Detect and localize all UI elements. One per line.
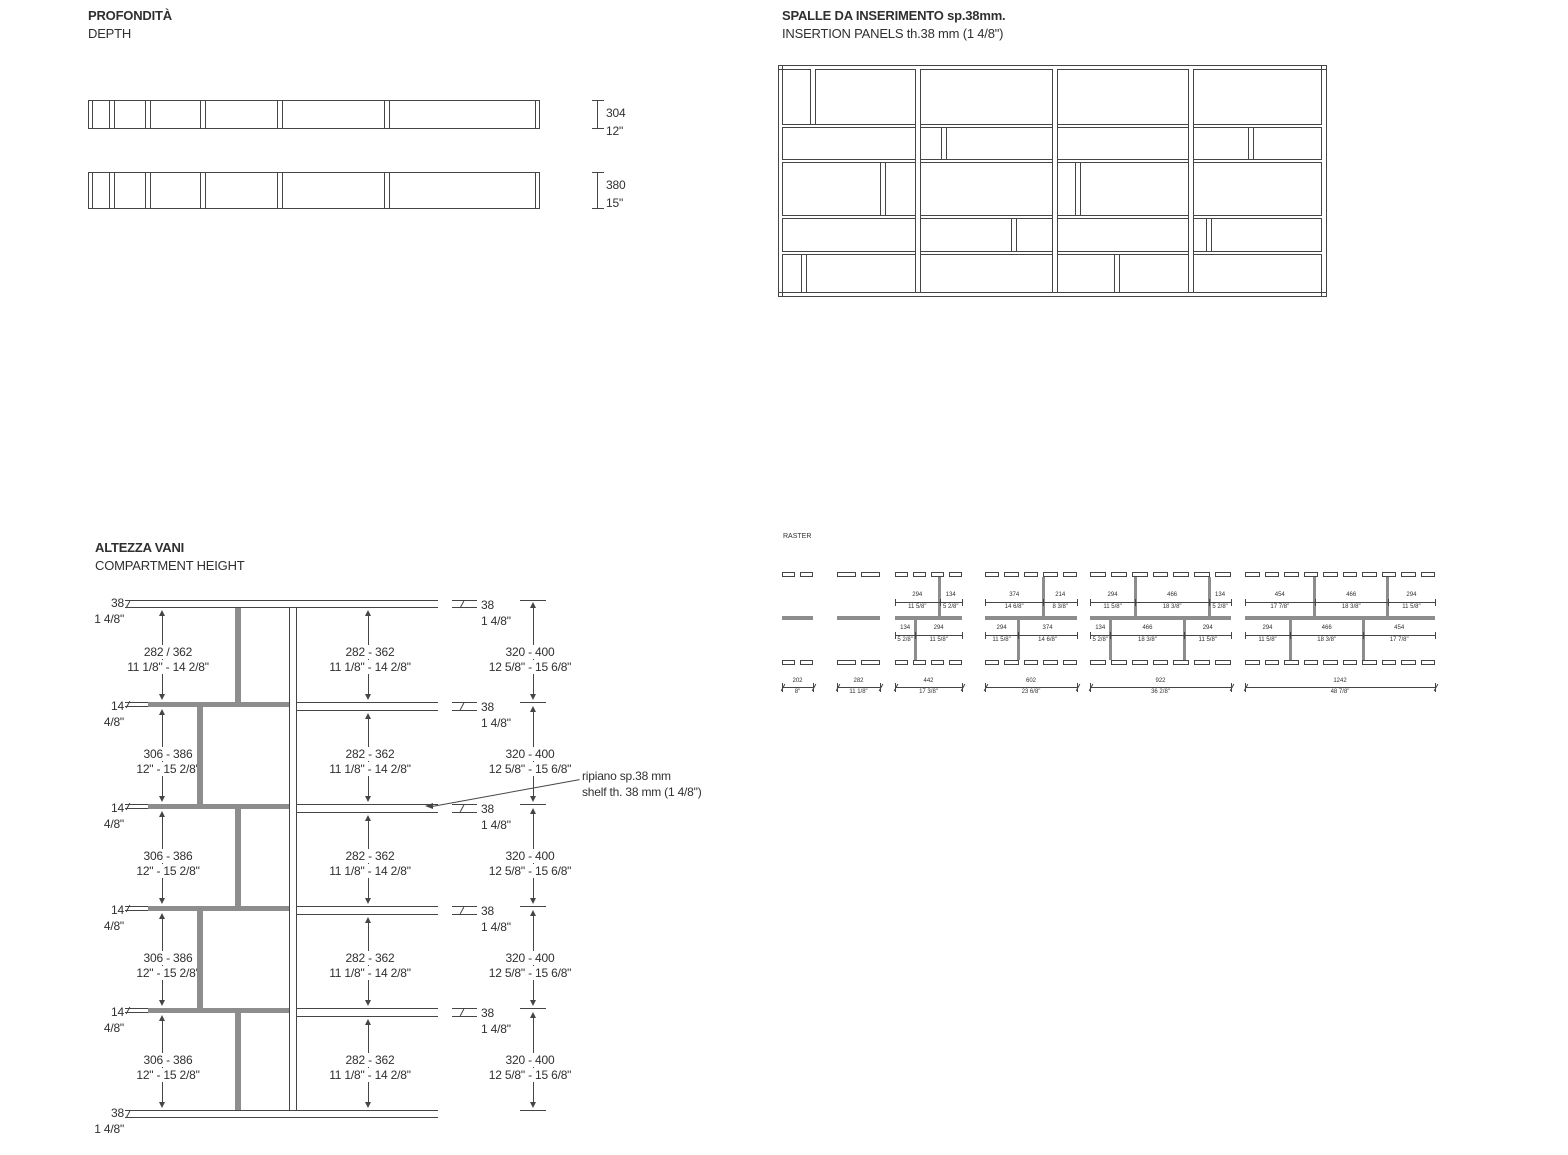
raster-shelf bbox=[985, 616, 1077, 620]
right-ext-line bbox=[452, 812, 477, 813]
middle-dim-arrow-down bbox=[365, 1102, 371, 1108]
raster-dash bbox=[1245, 572, 1260, 577]
left-dim-arrow-up bbox=[159, 610, 165, 616]
raster-dash bbox=[1401, 660, 1416, 665]
middle-dim-arrow-down bbox=[365, 898, 371, 904]
raster-dash bbox=[1153, 660, 1169, 665]
raster-segment-mm: 466 bbox=[1305, 625, 1349, 632]
depth-bar-divider bbox=[384, 101, 390, 128]
thin-shelf-14mm bbox=[148, 702, 289, 707]
grid-inner-bottom-line bbox=[779, 292, 1326, 293]
right-compartment-inch: 12 5/8" - 15 6/8" bbox=[470, 660, 590, 674]
raster-segment-inch: 14 6/8" bbox=[992, 604, 1036, 611]
middle-dim-arrow-up bbox=[365, 713, 371, 719]
depth-bar-divider bbox=[109, 101, 115, 128]
raster-shelf bbox=[895, 616, 962, 620]
middle-dim-arrow-up bbox=[365, 917, 371, 923]
left-dim-arrow-down bbox=[159, 1000, 165, 1006]
left-compartment-inch: 12" - 15 2/8" bbox=[108, 762, 228, 776]
raster-dash bbox=[1111, 572, 1127, 577]
left-dim-arrow-down bbox=[159, 796, 165, 802]
top-shelf bbox=[148, 600, 438, 608]
middle-dim-arrow-up bbox=[365, 815, 371, 821]
left-ext-line bbox=[125, 910, 148, 911]
raster-width-dim-line bbox=[895, 687, 962, 688]
raster-width-mm: 202 bbox=[773, 678, 823, 685]
raster-dash bbox=[1132, 660, 1148, 665]
raster-dash bbox=[1004, 572, 1018, 577]
left-compartment-mm: 306 - 386 bbox=[108, 1053, 228, 1067]
raster-segment-inch: 8 3/8" bbox=[1038, 604, 1082, 611]
raster-dash bbox=[1173, 572, 1189, 577]
right-dim-arrow-up bbox=[530, 602, 536, 608]
raster-width-dim-line bbox=[837, 687, 880, 688]
raster-dash bbox=[837, 660, 856, 665]
raster-dash bbox=[861, 572, 880, 577]
dimension-bracket-tick bbox=[592, 100, 604, 101]
raster-seg-dim-line bbox=[985, 635, 1077, 636]
right-dim-arrow-down bbox=[530, 694, 536, 700]
raster-segment-inch: 5 2/8" bbox=[1078, 637, 1122, 644]
right-compartment-mm: 320 - 400 bbox=[470, 849, 590, 863]
left-dim-arrow-up bbox=[159, 811, 165, 817]
left-dim-arrow-down bbox=[159, 694, 165, 700]
insertion-panel bbox=[880, 163, 886, 215]
depth-bar-divider bbox=[200, 101, 206, 128]
middle-dim-arrow-down bbox=[365, 796, 371, 802]
raster-dash bbox=[1284, 572, 1299, 577]
raster-segment-mm: 134 bbox=[1078, 625, 1122, 632]
middle-dim-arrow-down bbox=[365, 694, 371, 700]
depth-bar-divider bbox=[145, 101, 151, 128]
insertion-panel bbox=[1114, 255, 1120, 292]
raster-seg-tick bbox=[985, 599, 986, 606]
raster-seg-tick bbox=[1363, 632, 1364, 639]
dimension-bracket-line bbox=[597, 100, 598, 129]
raster-segment-mm: 454 bbox=[1377, 625, 1421, 632]
raster-width-dim-line bbox=[782, 687, 813, 688]
right-dim-arrow-down bbox=[530, 898, 536, 904]
grid-bay-panel bbox=[1052, 69, 1058, 292]
raster-shelf bbox=[837, 616, 880, 620]
raster-segment-inch: 11 5/8" bbox=[1091, 604, 1135, 611]
grid-inner-right-line bbox=[1321, 66, 1322, 296]
raster-segment-inch: 5 2/8" bbox=[1198, 604, 1242, 611]
raster-seg-tick bbox=[1135, 599, 1136, 606]
raster-dash bbox=[1004, 660, 1018, 665]
raster-dash bbox=[1215, 660, 1231, 665]
raster-segment-mm: 294 bbox=[917, 625, 961, 632]
middle-dim-arrow-up bbox=[365, 1019, 371, 1025]
raster-segment-mm: 374 bbox=[1026, 625, 1070, 632]
raster-seg-dim-line bbox=[1245, 635, 1435, 636]
middle-compartment-inch: 11 1/8" - 14 2/8" bbox=[310, 660, 430, 674]
raster-segment-mm: 294 bbox=[1246, 625, 1290, 632]
insertion-panel bbox=[941, 128, 947, 159]
right-shelf-thickness-mm: 38 bbox=[481, 598, 494, 612]
vertical-post bbox=[235, 608, 241, 702]
grid-inner-left-line bbox=[782, 66, 783, 296]
raster-dash bbox=[1323, 572, 1338, 577]
right-shelf-thickness-inch: 1 4/8" bbox=[481, 1022, 511, 1036]
dimension-bracket-line bbox=[597, 172, 598, 209]
right-compartment-inch: 12 5/8" - 15 6/8" bbox=[470, 1068, 590, 1082]
raster-width-dim-line bbox=[1245, 687, 1435, 688]
raster-dash bbox=[985, 572, 999, 577]
left-ext-line bbox=[125, 1012, 148, 1013]
raster-width-mm: 442 bbox=[904, 678, 954, 685]
depth-bar-edge-line bbox=[535, 173, 536, 208]
insertion-panel bbox=[1075, 163, 1081, 215]
vertical-post bbox=[235, 1013, 241, 1110]
depth-bar-edge-line bbox=[92, 101, 93, 128]
right-dim-arrow-down bbox=[530, 796, 536, 802]
raster-segment-inch: 18 3/8" bbox=[1329, 604, 1373, 611]
right-dim-ext-line bbox=[520, 1110, 546, 1111]
insertion-panel bbox=[801, 255, 807, 292]
raster-dash bbox=[949, 572, 962, 577]
raster-dash bbox=[1323, 660, 1338, 665]
right-dim-arrow-up bbox=[530, 706, 536, 712]
raster-segment-mm: 466 bbox=[1150, 592, 1194, 599]
left-compartment-mm: 306 - 386 bbox=[108, 747, 228, 761]
raster-seg-dim-line bbox=[895, 602, 962, 603]
vertical-post bbox=[235, 809, 241, 906]
raster-dash bbox=[800, 660, 813, 665]
thin-shelf-14mm bbox=[148, 804, 289, 809]
raster-seg-dim-line bbox=[1245, 602, 1435, 603]
spec-sheet-page: PROFONDITÀ DEPTH SPALLE DA INSERIMENTO s… bbox=[0, 0, 1568, 1155]
depth-bar-outline bbox=[88, 100, 540, 129]
insertion-panel bbox=[1011, 219, 1017, 251]
raster-segment-mm: 214 bbox=[1038, 592, 1082, 599]
left-compartment-mm: 306 - 386 bbox=[108, 951, 228, 965]
right-compartment-mm: 320 - 400 bbox=[470, 645, 590, 659]
raster-width-inch: 11 1/8" bbox=[834, 689, 884, 696]
right-dim-arrow-up bbox=[530, 910, 536, 916]
raster-segment-mm: 134 bbox=[929, 592, 973, 599]
top-thickness-mm: 38 bbox=[74, 596, 124, 610]
depth-bar-divider bbox=[277, 101, 283, 128]
right-shelf-thickness-mm: 38 bbox=[481, 802, 494, 816]
raster-segment-inch: 17 7/8" bbox=[1258, 604, 1302, 611]
middle-compartment-inch: 11 1/8" - 14 2/8" bbox=[310, 966, 430, 980]
raster-segment-inch: 11 5/8" bbox=[1246, 637, 1290, 644]
middle-compartment-mm: 282 - 362 bbox=[310, 1053, 430, 1067]
compartment-title-english: COMPARTMENT HEIGHT bbox=[95, 558, 245, 574]
depth-dimension-mm: 380 bbox=[606, 178, 625, 192]
right-dim-ext-line bbox=[520, 600, 546, 601]
left-dim-arrow-up bbox=[159, 709, 165, 715]
shelf-thickness-mm: 14 bbox=[74, 699, 124, 713]
raster-seg-dim-line bbox=[985, 602, 1077, 603]
annotation-leader-line bbox=[432, 779, 580, 807]
raster-width-inch: 17 3/8" bbox=[904, 689, 954, 696]
right-ext-line bbox=[452, 710, 477, 711]
dimension-bracket-tick bbox=[592, 128, 604, 129]
raster-segment-mm: 294 bbox=[1389, 592, 1433, 599]
left-compartment-mm: 282 / 362 bbox=[108, 645, 228, 659]
left-ext-line bbox=[125, 808, 148, 809]
right-dim-arrow-up bbox=[530, 1012, 536, 1018]
left-dim-arrow-up bbox=[159, 1015, 165, 1021]
raster-segment-mm: 374 bbox=[992, 592, 1036, 599]
raster-width-mm: 922 bbox=[1136, 678, 1186, 685]
raster-segment-mm: 134 bbox=[1198, 592, 1242, 599]
shelf-annotation-italian: ripiano sp.38 mm bbox=[582, 769, 671, 783]
raster-dash bbox=[1284, 660, 1299, 665]
thick-shelf-38mm bbox=[297, 702, 438, 711]
raster-width-mm: 602 bbox=[1006, 678, 1056, 685]
raster-seg-tick bbox=[1231, 632, 1232, 639]
raster-segment-inch: 14 6/8" bbox=[1026, 637, 1070, 644]
depth-bar-edge-line bbox=[92, 173, 93, 208]
right-shelf-thickness-mm: 38 bbox=[481, 1006, 494, 1020]
right-compartment-inch: 12 5/8" - 15 6/8" bbox=[470, 864, 590, 878]
raster-seg-tick bbox=[1435, 632, 1436, 639]
raster-segment-inch: 18 3/8" bbox=[1150, 604, 1194, 611]
raster-segment-inch: 11 5/8" bbox=[917, 637, 961, 644]
raster-width-mm: 282 bbox=[834, 678, 884, 685]
raster-dash bbox=[913, 572, 926, 577]
left-compartment-inch: 12" - 15 2/8" bbox=[108, 966, 228, 980]
annotation-arrowhead bbox=[425, 803, 433, 809]
right-dim-arrow-down bbox=[530, 1000, 536, 1006]
depth-bar-divider bbox=[145, 173, 151, 208]
shelf-thickness-inch: 4/8" bbox=[74, 715, 124, 729]
raster-segment-inch: 18 3/8" bbox=[1305, 637, 1349, 644]
left-compartment-inch: 12" - 15 2/8" bbox=[108, 864, 228, 878]
insertion-title-english: INSERTION PANELS th.38 mm (1 4/8") bbox=[782, 26, 1003, 42]
raster-segment-mm: 466 bbox=[1329, 592, 1373, 599]
right-shelf-thickness-inch: 1 4/8" bbox=[481, 818, 511, 832]
right-shelf-thickness-inch: 1 4/8" bbox=[481, 614, 511, 628]
raster-segment-inch: 11 5/8" bbox=[1186, 637, 1230, 644]
raster-width-inch: 8" bbox=[773, 689, 823, 696]
middle-compartment-mm: 282 - 362 bbox=[310, 849, 430, 863]
depth-bar-divider bbox=[200, 173, 206, 208]
raster-seg-tick bbox=[1290, 632, 1291, 639]
right-dim-ext-line bbox=[520, 804, 546, 805]
raster-segment-inch: 18 3/8" bbox=[1125, 637, 1169, 644]
raster-dash bbox=[895, 572, 908, 577]
raster-dash bbox=[861, 660, 880, 665]
raster-width-inch: 48 7/8" bbox=[1315, 689, 1365, 696]
raster-segment-inch: 11 5/8" bbox=[1389, 604, 1433, 611]
right-ext-line bbox=[452, 607, 477, 608]
raster-seg-tick bbox=[1315, 599, 1316, 606]
raster-dash bbox=[1024, 572, 1038, 577]
depth-bar-divider bbox=[277, 173, 283, 208]
raster-dash bbox=[1265, 572, 1280, 577]
depth-dimension-inch: 12" bbox=[606, 124, 623, 138]
raster-dash bbox=[1421, 660, 1436, 665]
raster-dash bbox=[985, 660, 999, 665]
raster-dash bbox=[1194, 660, 1210, 665]
insertion-title-italian: SPALLE DA INSERIMENTO sp.38mm. bbox=[782, 8, 1005, 24]
raster-segment-mm: 454 bbox=[1258, 592, 1302, 599]
compartment-title-italian: ALTEZZA VANI bbox=[95, 540, 184, 556]
raster-dash bbox=[1215, 572, 1231, 577]
depth-bar-divider bbox=[109, 173, 115, 208]
raster-dash bbox=[1063, 572, 1077, 577]
raster-dash bbox=[1265, 660, 1280, 665]
left-dim-arrow-down bbox=[159, 1102, 165, 1108]
right-dim-ext-line bbox=[520, 1008, 546, 1009]
thick-shelf-38mm bbox=[297, 906, 438, 915]
left-ext-line bbox=[125, 607, 148, 608]
middle-compartment-mm: 282 - 362 bbox=[310, 645, 430, 659]
vertical-post bbox=[197, 707, 203, 804]
left-compartment-inch: 11 1/8" - 14 2/8" bbox=[108, 660, 228, 674]
raster-dash bbox=[1043, 572, 1057, 577]
shelf-thickness-mm: 14 bbox=[74, 801, 124, 815]
right-compartment-mm: 320 - 400 bbox=[470, 747, 590, 761]
shelf-thickness-mm: 14 bbox=[74, 1005, 124, 1019]
middle-compartment-inch: 11 1/8" - 14 2/8" bbox=[310, 762, 430, 776]
raster-width-dim-line bbox=[985, 687, 1077, 688]
dimension-bracket-tick bbox=[592, 208, 604, 209]
middle-compartment-mm: 282 - 362 bbox=[310, 951, 430, 965]
right-shelf-thickness-inch: 1 4/8" bbox=[481, 920, 511, 934]
raster-dash bbox=[1173, 660, 1189, 665]
depth-title-italian: PROFONDITÀ bbox=[88, 8, 172, 24]
raster-dash bbox=[1362, 572, 1377, 577]
right-dim-arrow-up bbox=[530, 808, 536, 814]
right-dim-arrow-down bbox=[530, 1102, 536, 1108]
right-compartment-inch: 12 5/8" - 15 6/8" bbox=[470, 762, 590, 776]
left-ext-line bbox=[125, 1117, 148, 1118]
middle-dim-arrow-down bbox=[365, 1000, 371, 1006]
depth-bar-outline bbox=[88, 172, 540, 209]
depth-bar-edge-line bbox=[535, 101, 536, 128]
thick-shelf-38mm bbox=[297, 1008, 438, 1017]
bottom-thickness-mm: 38 bbox=[74, 1106, 124, 1120]
raster-segment-mm: 466 bbox=[1125, 625, 1169, 632]
raster-segment-mm: 294 bbox=[1091, 592, 1135, 599]
grid-bay-panel bbox=[1188, 69, 1194, 292]
raster-segment-inch: 17 7/8" bbox=[1377, 637, 1421, 644]
raster-segment-inch: 5 2/8" bbox=[929, 604, 973, 611]
shelf-thickness-mm: 14 bbox=[74, 903, 124, 917]
shelf-thickness-inch: 4/8" bbox=[74, 919, 124, 933]
right-shelf-thickness-mm: 38 bbox=[481, 700, 494, 714]
bottom-shelf bbox=[148, 1110, 438, 1118]
raster-width-mm: 1242 bbox=[1315, 678, 1365, 685]
raster-dash bbox=[1090, 660, 1106, 665]
dimension-bracket-tick bbox=[592, 172, 604, 173]
raster-shelf bbox=[782, 616, 813, 620]
left-compartment-mm: 306 - 386 bbox=[108, 849, 228, 863]
right-ext-line bbox=[452, 914, 477, 915]
raster-seg-dim-line bbox=[895, 635, 962, 636]
raster-dash bbox=[1343, 572, 1358, 577]
middle-compartment-inch: 11 1/8" - 14 2/8" bbox=[310, 1068, 430, 1082]
raster-dash bbox=[1024, 660, 1038, 665]
raster-dash bbox=[837, 572, 856, 577]
raster-dash bbox=[1090, 572, 1106, 577]
right-dim-ext-line bbox=[520, 702, 546, 703]
raster-dash bbox=[931, 660, 944, 665]
insertion-panel bbox=[1248, 128, 1254, 159]
raster-dash bbox=[949, 660, 962, 665]
raster-dash bbox=[1153, 572, 1169, 577]
raster-dash bbox=[1421, 572, 1436, 577]
insertion-panel bbox=[1206, 219, 1212, 251]
right-shelf-thickness-inch: 1 4/8" bbox=[481, 716, 511, 730]
depth-bar-divider bbox=[384, 173, 390, 208]
left-dim-arrow-down bbox=[159, 898, 165, 904]
right-dim-ext-line bbox=[520, 906, 546, 907]
raster-segment-mm: 294 bbox=[980, 625, 1024, 632]
top-thickness-inch: 1 4/8" bbox=[74, 612, 124, 626]
shelf-annotation-english: shelf th. 38 mm (1 4/8") bbox=[582, 785, 702, 799]
raster-width-inch: 23 6/8" bbox=[1006, 689, 1056, 696]
raster-seg-tick bbox=[962, 632, 963, 639]
bottom-thickness-inch: 1 4/8" bbox=[74, 1122, 124, 1136]
vertical-post bbox=[197, 911, 203, 1008]
raster-post-top bbox=[1313, 577, 1316, 616]
depth-dimension-mm: 304 bbox=[606, 106, 625, 120]
raster-dash bbox=[800, 572, 813, 577]
raster-segment-mm: 294 bbox=[1186, 625, 1230, 632]
depth-dimension-inch: 15" bbox=[606, 196, 623, 210]
thin-shelf-14mm bbox=[148, 906, 289, 911]
raster-width-inch: 36 2/8" bbox=[1136, 689, 1186, 696]
right-compartment-mm: 320 - 400 bbox=[470, 951, 590, 965]
raster-dash bbox=[1245, 660, 1260, 665]
right-compartment-mm: 320 - 400 bbox=[470, 1053, 590, 1067]
right-shelf-thickness-mm: 38 bbox=[481, 904, 494, 918]
thin-shelf-14mm bbox=[148, 1008, 289, 1013]
raster-title: RASTER bbox=[783, 533, 811, 541]
shelf-thickness-inch: 4/8" bbox=[74, 1021, 124, 1035]
raster-dash bbox=[1304, 660, 1319, 665]
left-dim-arrow-up bbox=[159, 913, 165, 919]
grid-bay-panel bbox=[915, 69, 921, 292]
raster-seg-tick bbox=[1245, 599, 1246, 606]
raster-dash bbox=[782, 660, 795, 665]
middle-dim-arrow-up bbox=[365, 610, 371, 616]
raster-dash bbox=[913, 660, 926, 665]
middle-compartment-inch: 11 1/8" - 14 2/8" bbox=[310, 864, 430, 878]
raster-dash bbox=[1382, 660, 1397, 665]
raster-dash bbox=[1343, 660, 1358, 665]
raster-segment-inch: 11 5/8" bbox=[980, 637, 1024, 644]
raster-dash bbox=[1401, 572, 1416, 577]
raster-dash bbox=[1111, 660, 1127, 665]
raster-dash bbox=[782, 572, 795, 577]
right-ext-line bbox=[452, 1016, 477, 1017]
shelf-thickness-inch: 4/8" bbox=[74, 817, 124, 831]
raster-seg-tick bbox=[1435, 599, 1436, 606]
raster-post-bottom bbox=[1362, 620, 1365, 660]
right-compartment-inch: 12 5/8" - 15 6/8" bbox=[470, 966, 590, 980]
raster-dash bbox=[1063, 660, 1077, 665]
left-ext-line bbox=[125, 706, 148, 707]
thick-shelf-38mm bbox=[297, 804, 438, 813]
raster-dash bbox=[1043, 660, 1057, 665]
left-compartment-inch: 12" - 15 2/8" bbox=[108, 1068, 228, 1082]
central-vertical-panel bbox=[289, 608, 297, 1110]
raster-shelf bbox=[1245, 616, 1435, 620]
raster-dash bbox=[895, 660, 908, 665]
raster-dash bbox=[1362, 660, 1377, 665]
insertion-panel bbox=[810, 69, 816, 124]
depth-title-english: DEPTH bbox=[88, 26, 131, 42]
raster-width-dim-line bbox=[1090, 687, 1231, 688]
middle-compartment-mm: 282 - 362 bbox=[310, 747, 430, 761]
